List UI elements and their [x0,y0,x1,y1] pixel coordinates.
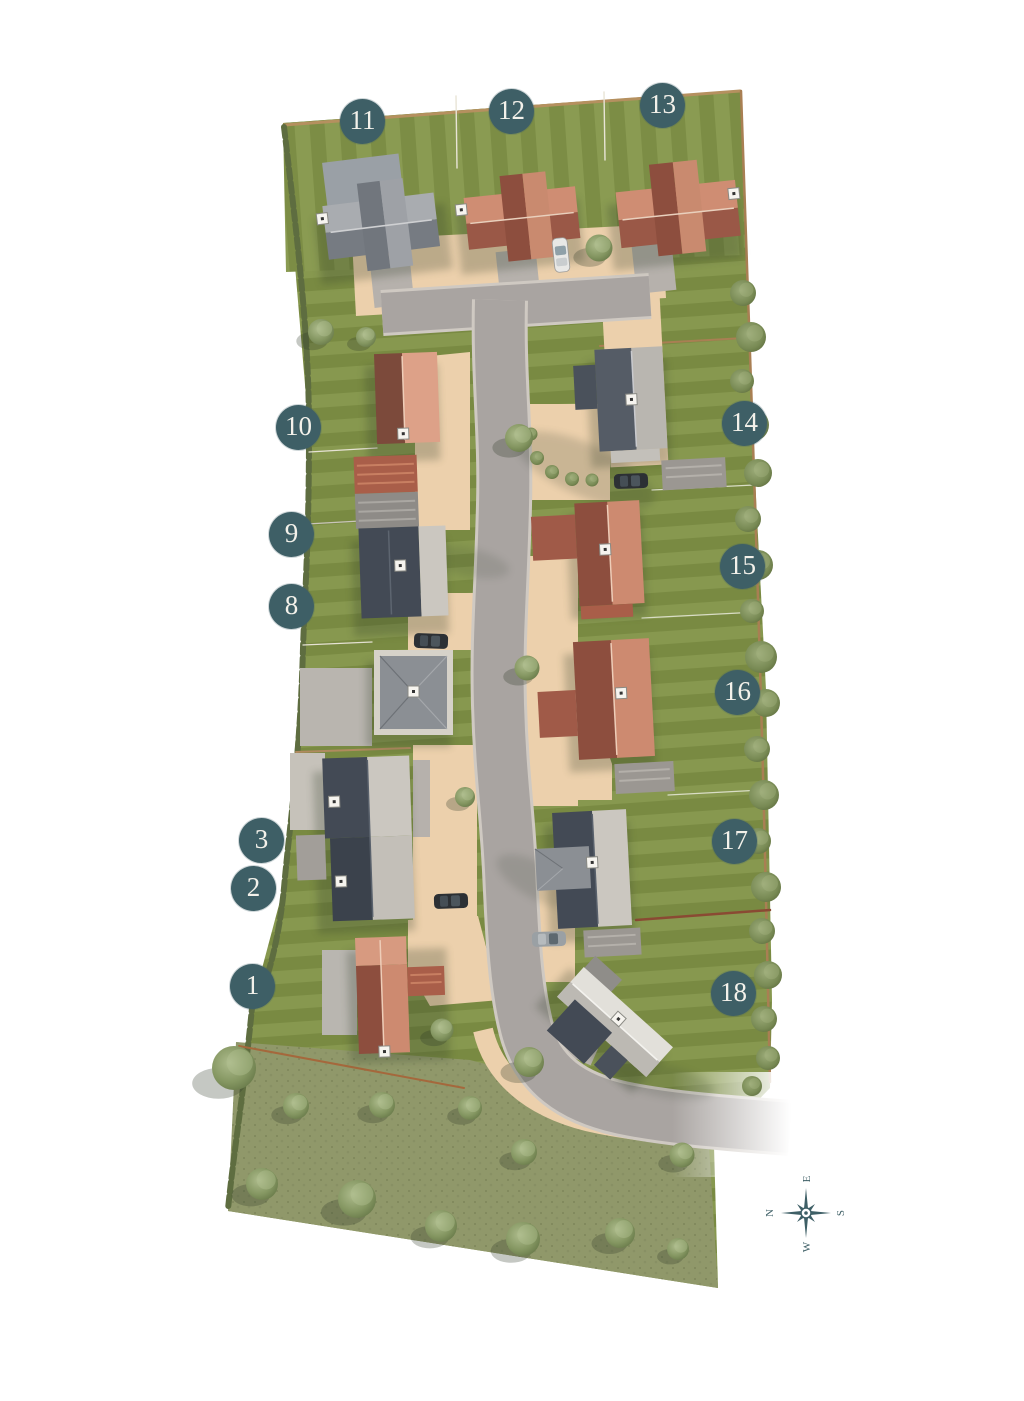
plot-badge-12[interactable]: 12 [489,89,534,134]
plot-number: 2 [247,874,261,901]
plot-number: 18 [720,979,747,1006]
plot-number: 10 [285,413,312,440]
plot-number: 17 [721,827,748,854]
house-plot-9 [350,525,449,636]
plot-badge-15[interactable]: 15 [720,544,765,589]
plot-badge-8[interactable]: 8 [269,584,314,629]
plot-badge-13[interactable]: 13 [640,83,685,128]
car-dark-3 [434,893,469,909]
compass-south: S [835,1210,847,1216]
plot-badge-14[interactable]: 14 [722,401,767,446]
plot-badge-11[interactable]: 11 [340,99,385,144]
compass-east: E [801,1175,813,1182]
plot-badge-9[interactable]: 9 [269,512,314,557]
compass-north: N [764,1209,776,1217]
plot-number: 13 [649,91,676,118]
plot-number: 12 [498,97,525,124]
plot-number: 14 [731,409,758,436]
plot-number: 16 [724,678,751,705]
plot-number: 15 [729,552,756,579]
divider-12-13 [604,92,605,160]
compass-west: W [801,1241,813,1252]
plot-number: 9 [285,520,299,547]
car-white [552,237,570,272]
car-dark-2 [414,633,449,649]
plot-number: 8 [285,592,299,619]
car-grey [532,931,567,947]
plot-badge-1[interactable]: 1 [230,964,275,1009]
plot-number: 11 [350,107,376,134]
plot-number: 3 [255,826,269,853]
plot-badge-16[interactable]: 16 [715,670,760,715]
plot-badge-10[interactable]: 10 [276,405,321,450]
site-plan-render: N E S W [0,0,1024,1401]
plot-number: 1 [246,972,260,999]
compass-rose: N E S W [764,1175,847,1252]
plot-badge-18[interactable]: 18 [711,971,756,1016]
house-plot-8 [366,650,453,747]
plot-badge-17[interactable]: 17 [712,819,757,864]
plot-badge-3[interactable]: 3 [239,818,284,863]
plot-badge-2[interactable]: 2 [231,866,276,911]
site-plan-page: N E S W 1 2 3 8 9 10 11 12 13 14 15 16 1… [0,0,1024,1401]
car-dark-1 [614,473,649,489]
divider-11-12 [456,96,457,168]
